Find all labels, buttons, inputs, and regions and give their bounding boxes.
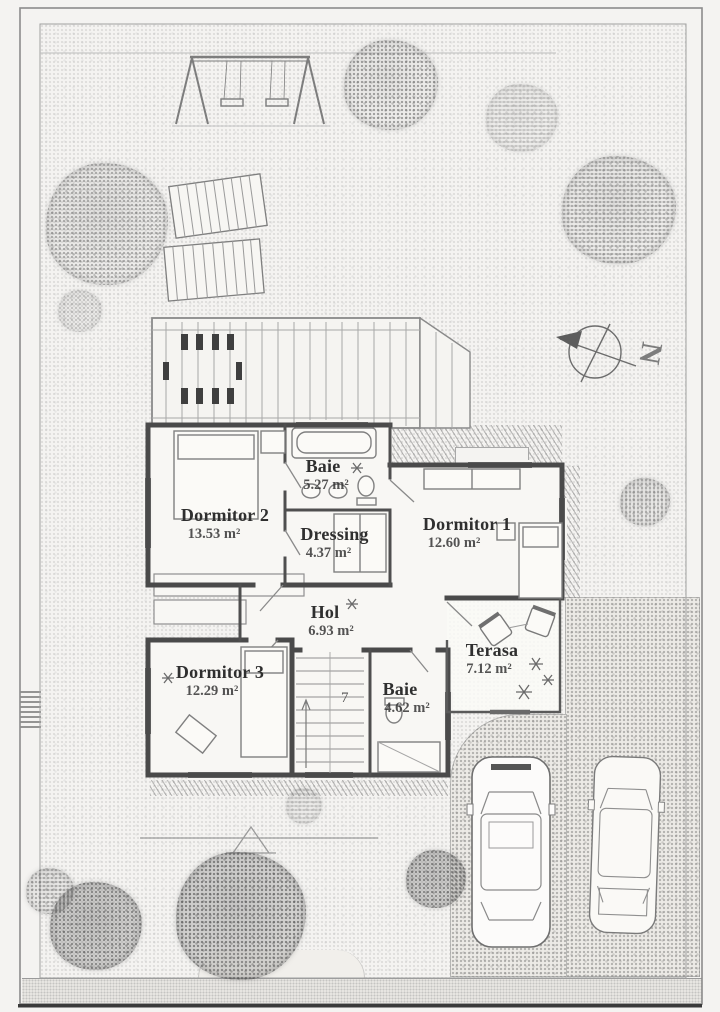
tree-top-right: [486, 84, 558, 152]
swing-set: [172, 57, 330, 126]
room-label-dormitor-1: Dormitor 1 12.60 m²: [387, 514, 547, 551]
bush-left-small: [26, 868, 74, 914]
floor-plan-page: Dormitor 2 13.53 m² Baie 5.27 m² Dressin…: [0, 0, 720, 1012]
room-area: 7.12 m²: [426, 661, 552, 678]
north-label: N: [628, 332, 670, 374]
tree-right: [562, 156, 676, 264]
bush-bottom-center: [176, 852, 306, 980]
tree-top-left: [46, 163, 168, 285]
room-area: 4.62 m²: [369, 700, 445, 717]
garden-fence: [140, 827, 378, 853]
room-area: 13.53 m²: [123, 526, 305, 543]
room-name: Baie: [355, 679, 445, 700]
room-label-terasa: Terasa 7.12 m²: [432, 640, 552, 677]
tree-bottom-center: [406, 850, 466, 908]
room-area: 5.27 m²: [289, 477, 363, 494]
room-area: 6.93 m²: [277, 623, 385, 640]
sun-loungers: [164, 174, 267, 301]
bush-left: [58, 290, 102, 332]
room-name: Hol: [265, 602, 385, 623]
room-name: Baie: [283, 456, 363, 477]
sapling-bottom: [286, 788, 322, 824]
bathtub-icon: [292, 428, 376, 458]
stairs-step-count: 7: [341, 690, 349, 707]
bush-right: [620, 478, 670, 526]
room-label-baie-1: Baie 5.27 m²: [283, 456, 363, 493]
room-label-baie-2: Baie 4.62 m²: [355, 679, 445, 716]
shower-icon: [378, 742, 440, 772]
room-name: Terasa: [432, 640, 552, 661]
room-name: Dormitor 1: [387, 514, 547, 535]
room-name: Dormitor 2: [145, 505, 305, 526]
room-label-dormitor-2: Dormitor 2 13.53 m²: [145, 505, 305, 542]
room-label-hol: Hol 6.93 m²: [265, 602, 385, 639]
plan-drawing: [0, 0, 720, 1012]
room-area: 12.29 m²: [124, 683, 300, 700]
car-1: [467, 757, 555, 947]
nightstand-icon: [261, 431, 285, 453]
room-label-dormitor-3: Dormitor 3 12.29 m²: [140, 662, 300, 699]
car-2: [584, 756, 666, 935]
pergola-roof: [152, 318, 470, 428]
wardrobe-dormitor-1: [424, 469, 520, 489]
room-name: Dormitor 3: [140, 662, 300, 683]
compass-rose: [556, 324, 636, 382]
room-area: 12.60 m²: [361, 535, 547, 552]
tree-top-center: [344, 40, 438, 130]
